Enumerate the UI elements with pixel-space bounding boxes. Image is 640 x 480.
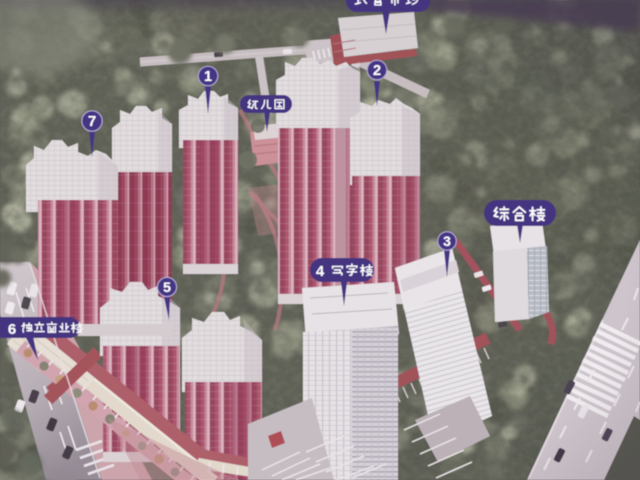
svg-text:1: 1 bbox=[204, 69, 212, 85]
svg-text:6: 6 bbox=[8, 321, 16, 338]
svg-text:7: 7 bbox=[88, 113, 96, 130]
svg-text:4: 4 bbox=[316, 263, 325, 280]
svg-text:5: 5 bbox=[163, 279, 171, 295]
svg-text:3: 3 bbox=[443, 233, 451, 249]
svg-text:2: 2 bbox=[373, 63, 381, 79]
